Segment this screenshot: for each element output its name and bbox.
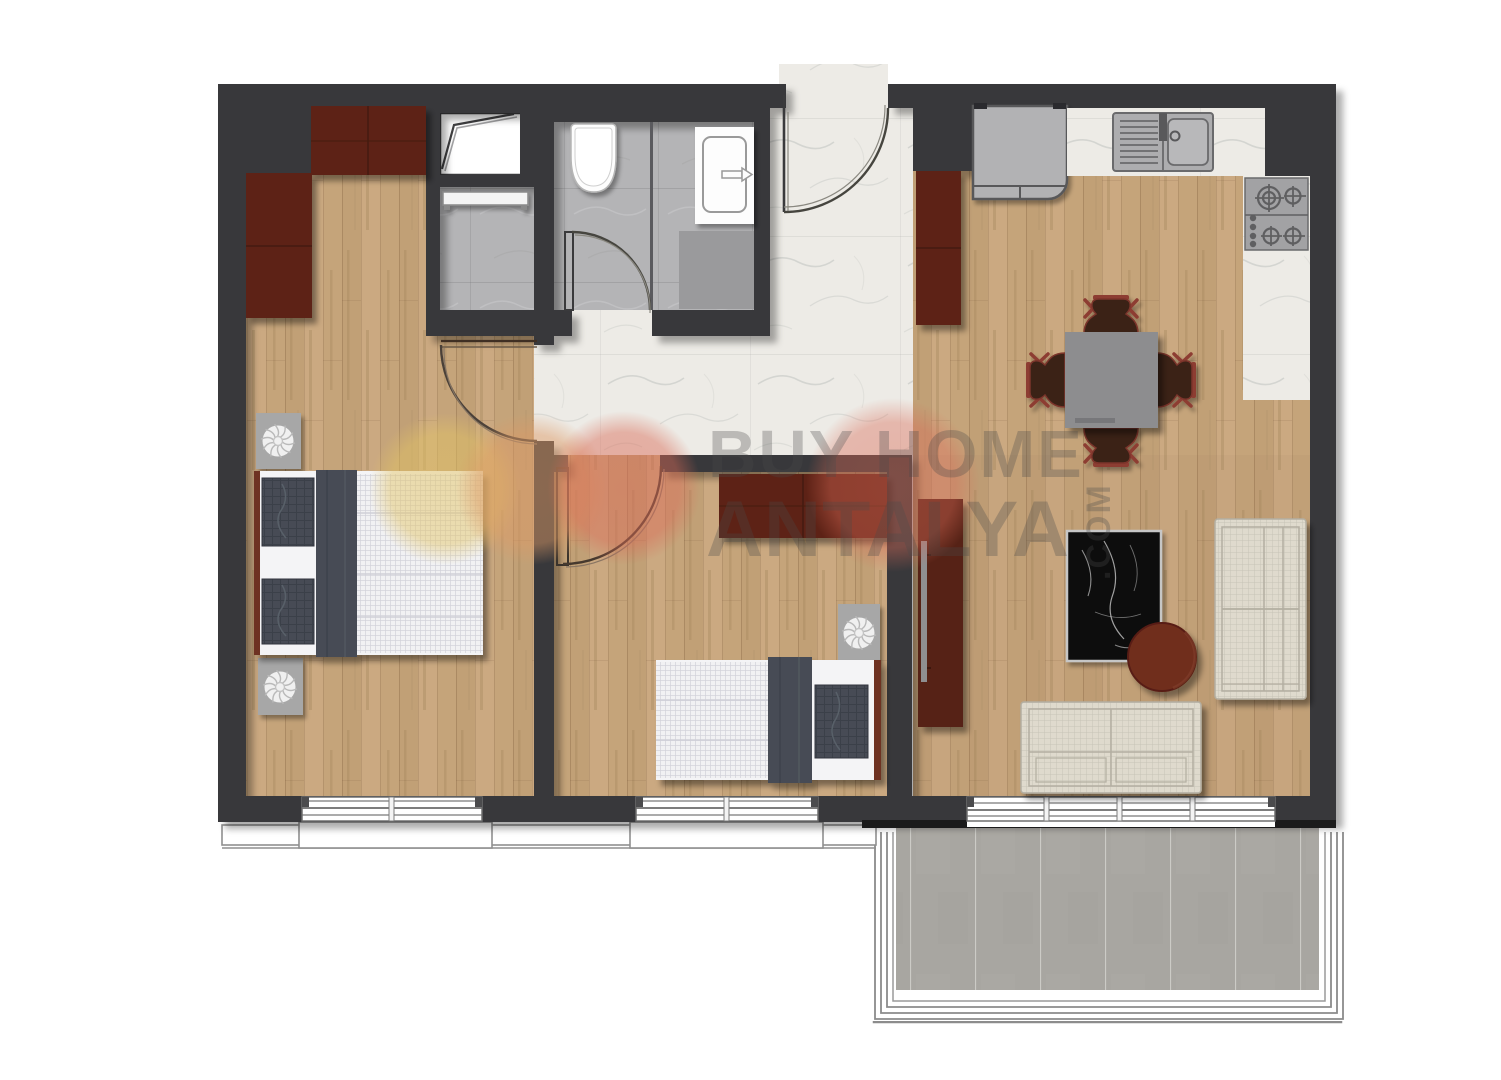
svg-text:.COM: .COM: [1080, 483, 1118, 580]
svg-text:ANTALYA: ANTALYA: [706, 484, 1070, 573]
svg-text:BUY HOME: BUY HOME: [708, 417, 1084, 492]
